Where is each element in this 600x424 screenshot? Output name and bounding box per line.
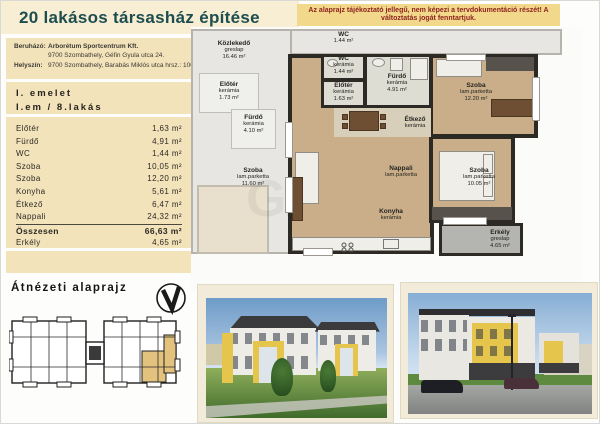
room-label-wc: WC kerámia 1.44 m² xyxy=(322,55,365,76)
neighbor-room-label: WC 1.44 m² xyxy=(321,31,366,45)
car-maroon xyxy=(504,378,539,389)
room-name: Konyha xyxy=(361,208,421,215)
total-label: Összesen xyxy=(16,225,59,238)
lamp-head xyxy=(508,314,516,317)
area-label: Konyha xyxy=(16,186,46,199)
area-label: Szoba xyxy=(16,173,41,186)
developer-name: Arborétum Sportcentrum Kft. xyxy=(48,42,138,51)
room-name: Étkező xyxy=(387,116,443,123)
yellow-wing xyxy=(222,333,233,383)
window xyxy=(443,217,487,225)
window-row xyxy=(476,329,515,339)
room-area: 12.20 m² xyxy=(446,96,506,103)
developer-label: Beruházó: xyxy=(14,42,48,51)
room-area: 1.44 m² xyxy=(321,38,366,45)
room-label-szoba-top: Szoba lam.parketta 12.20 m² xyxy=(446,82,506,103)
site-address: 9700 Szombathely, Barabás Miklós utca hr… xyxy=(48,61,205,70)
area-row: Konyha5,61 m² xyxy=(16,186,182,199)
area-row: Étkező6,47 m² xyxy=(16,199,182,212)
room-name: Fürdő xyxy=(226,114,281,121)
area-value: 1,44 m² xyxy=(152,148,182,161)
chair xyxy=(342,114,348,120)
tree xyxy=(271,358,293,396)
area-row: WC1,44 m² xyxy=(16,148,182,161)
washing-machine xyxy=(390,58,403,71)
area-label: WC xyxy=(16,148,30,161)
area-row: Fürdő4,91 m² xyxy=(16,136,182,149)
area-label: Nappali xyxy=(16,211,46,224)
main-floorplan: Közlekedő greslap 16.46 m² WC 1.44 m² El… xyxy=(191,27,583,291)
area-value: 5,61 m² xyxy=(152,186,182,199)
garage-band xyxy=(539,363,579,373)
developer-address: 9700 Szombathely, Géfin Gyula utca 24. xyxy=(48,51,164,60)
dining-table xyxy=(349,111,379,131)
room-material: lam.parketta xyxy=(449,174,509,181)
window xyxy=(446,54,486,61)
room-label-szoba-bottom: Szoba lam.parketta 10.05 m² xyxy=(449,167,509,188)
room-name: Nappali xyxy=(371,165,431,172)
room-material: kerámia xyxy=(371,80,423,87)
unit-designation: I.em / 8.lakás xyxy=(16,101,194,115)
site-label: Helyszín: xyxy=(14,61,48,70)
room-area: 1.63 m² xyxy=(322,96,365,103)
neighbor-room-label: Előtér kerámia 1.73 m² xyxy=(204,81,254,102)
area-label: Szoba xyxy=(16,161,41,174)
neighbor-room-label: Közlekedő greslap 16.46 m² xyxy=(203,40,265,61)
area-value: 12,20 m² xyxy=(147,173,182,186)
room-area: 4.10 m² xyxy=(226,128,281,135)
room-name: WC xyxy=(321,31,366,38)
room-name: Előtér xyxy=(322,82,365,89)
room-name: Közlekedő xyxy=(203,40,265,47)
room-label-etkezo: Étkező kerámia xyxy=(387,116,443,130)
developer-address-row: 9700 Szombathely, Géfin Gyula utca 24. xyxy=(14,51,188,60)
window xyxy=(532,77,540,121)
area-label: Étkező xyxy=(16,199,43,212)
room-name: WC xyxy=(322,55,365,62)
room-label-furdo: Fürdő kerámia 4.91 m² xyxy=(371,73,423,94)
room-label-erkely: Erkély greslap 4.65 m² xyxy=(473,229,527,250)
area-value: 6,47 m² xyxy=(152,199,182,212)
room-material: kerámia xyxy=(204,88,254,95)
room-label-konyha: Konyha kerámia xyxy=(361,208,421,222)
disclaimer-band: Az alaprajz tájékoztató jellegű, nem kép… xyxy=(297,4,560,26)
neighbor-room-label: Fürdő kerámia 4.10 m² xyxy=(226,114,281,135)
window xyxy=(285,122,293,158)
kitchen-sink xyxy=(383,239,399,249)
site-row: Helyszín: 9700 Szombathely, Barabás Mikl… xyxy=(14,61,188,70)
area-label: Fürdő xyxy=(16,136,39,149)
cabinet xyxy=(292,177,303,221)
building-render-right xyxy=(408,293,592,414)
room-label-eloter: Előtér kerámia 1.63 m² xyxy=(322,82,365,103)
sink xyxy=(372,58,385,67)
single-bed xyxy=(436,59,482,77)
room-material: kerámia xyxy=(322,89,365,96)
room-material: kerámia xyxy=(322,62,365,69)
building-render-left xyxy=(206,298,387,418)
unit-panel: I. emelet I.em / 8.lakás xyxy=(6,82,194,114)
stove xyxy=(339,239,361,249)
room-material: kerámia xyxy=(226,121,281,128)
flyer-page: 20 lakásos társasház építése Az alaprajz… xyxy=(0,0,600,424)
window-row xyxy=(421,339,467,351)
total-value: 66,63 m² xyxy=(145,225,182,238)
portal-opening xyxy=(340,348,353,376)
area-row: Szoba10,05 m² xyxy=(16,161,182,174)
room-material: kerámia xyxy=(387,123,443,130)
area-total-row: Összesen66,63 m² xyxy=(16,225,182,238)
north-arrow-icon xyxy=(153,280,189,316)
render-frame-right xyxy=(400,282,598,419)
area-row: Szoba12,20 m² xyxy=(16,173,182,186)
room-area: 16.46 m² xyxy=(203,54,265,61)
page-title: 20 lakásos társasház építése xyxy=(19,8,260,28)
tree xyxy=(320,360,336,391)
balcony-label: Erkély xyxy=(16,237,41,250)
stairs xyxy=(89,346,101,360)
room-name: Szoba xyxy=(449,167,509,174)
window-row xyxy=(476,346,515,356)
room-material: greslap xyxy=(203,47,265,54)
area-value: 24,32 m² xyxy=(147,211,182,224)
room-material: greslap xyxy=(473,236,527,243)
area-row-nappali: Nappali24,32 m² xyxy=(16,211,182,225)
area-balcony-row: Erkély4,65 m² xyxy=(16,237,182,250)
chair xyxy=(380,123,386,129)
area-value: 4,91 m² xyxy=(152,136,182,149)
room-name: Erkély xyxy=(473,229,527,236)
spacer xyxy=(14,51,48,60)
area-value: 1,63 m² xyxy=(152,123,182,136)
area-label: Előtér xyxy=(16,123,39,136)
room-area: 4.65 m² xyxy=(473,243,527,250)
chair xyxy=(380,114,386,120)
room-area: 10.05 m² xyxy=(449,181,509,188)
disclaimer-text: Az alaprajz tájékoztató jellegű, nem kép… xyxy=(297,7,560,22)
window xyxy=(303,248,333,256)
floor-name: I. emelet xyxy=(16,87,194,101)
project-info-panel: Beruházó: Arborétum Sportcentrum Kft. 97… xyxy=(6,38,194,79)
room-area: 4.91 m² xyxy=(371,87,423,94)
room-material: kerámia xyxy=(361,215,421,222)
room-name: Előtér xyxy=(204,81,254,88)
beige-spacer-panel xyxy=(6,251,194,273)
room-material: lam.parketta xyxy=(446,89,506,96)
area-table: Előtér1,63 m² Fürdő4,91 m² WC1,44 m² Szo… xyxy=(6,117,194,248)
chair xyxy=(342,123,348,129)
window-row xyxy=(421,320,467,332)
area-value: 10,05 m² xyxy=(147,161,182,174)
area-row: Előtér1,63 m² xyxy=(16,123,182,136)
overview-floorplan xyxy=(9,315,181,395)
overview-title: Átnézeti alaprajz xyxy=(11,282,127,294)
render-frame-left xyxy=(197,284,394,423)
window xyxy=(285,177,293,213)
room-name: Szoba xyxy=(446,82,506,89)
stove-burners xyxy=(339,242,361,252)
room-area: 1.44 m² xyxy=(322,69,365,76)
developer-row: Beruházó: Arborétum Sportcentrum Kft. xyxy=(14,42,188,51)
room-label-nappali: Nappali lam.parketta xyxy=(371,165,431,179)
room-name: Fürdő xyxy=(371,73,423,80)
wardrobe xyxy=(486,57,534,71)
car-dark xyxy=(421,380,463,393)
distant-building xyxy=(206,344,222,366)
room-area: 1.73 m² xyxy=(204,95,254,102)
balcony-value: 4,65 m² xyxy=(152,237,182,250)
room-material: lam.parketta xyxy=(371,172,431,179)
